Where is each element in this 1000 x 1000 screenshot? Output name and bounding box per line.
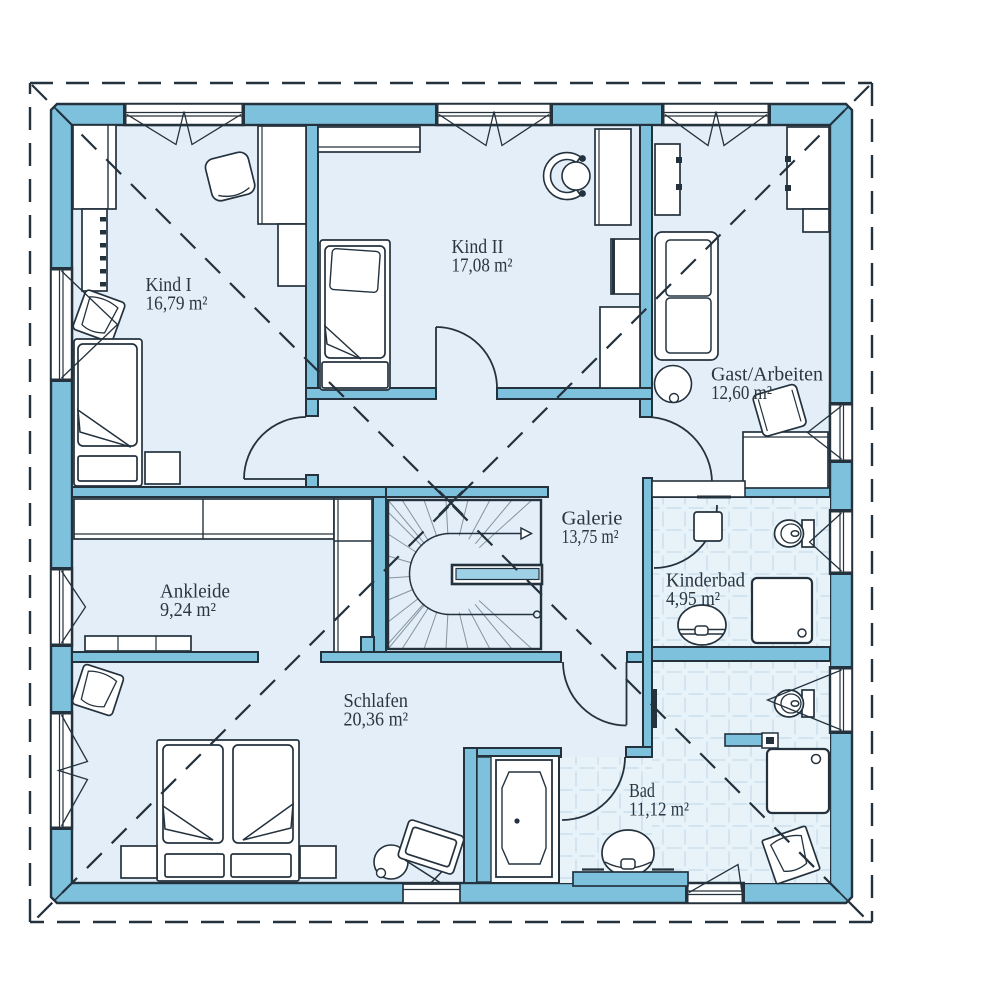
- svg-text:9,24 m²: 9,24 m²: [160, 600, 216, 621]
- svg-text:17,08 m²: 17,08 m²: [452, 256, 513, 277]
- svg-text:16,79 m²: 16,79 m²: [146, 294, 208, 315]
- svg-text:20,36 m²: 20,36 m²: [344, 710, 409, 731]
- svg-text:11,12 m²: 11,12 m²: [629, 800, 689, 821]
- svg-text:12,60 m²: 12,60 m²: [711, 383, 772, 404]
- svg-text:4,95 m²: 4,95 m²: [666, 589, 720, 610]
- svg-text:13,75 m²: 13,75 m²: [562, 527, 619, 548]
